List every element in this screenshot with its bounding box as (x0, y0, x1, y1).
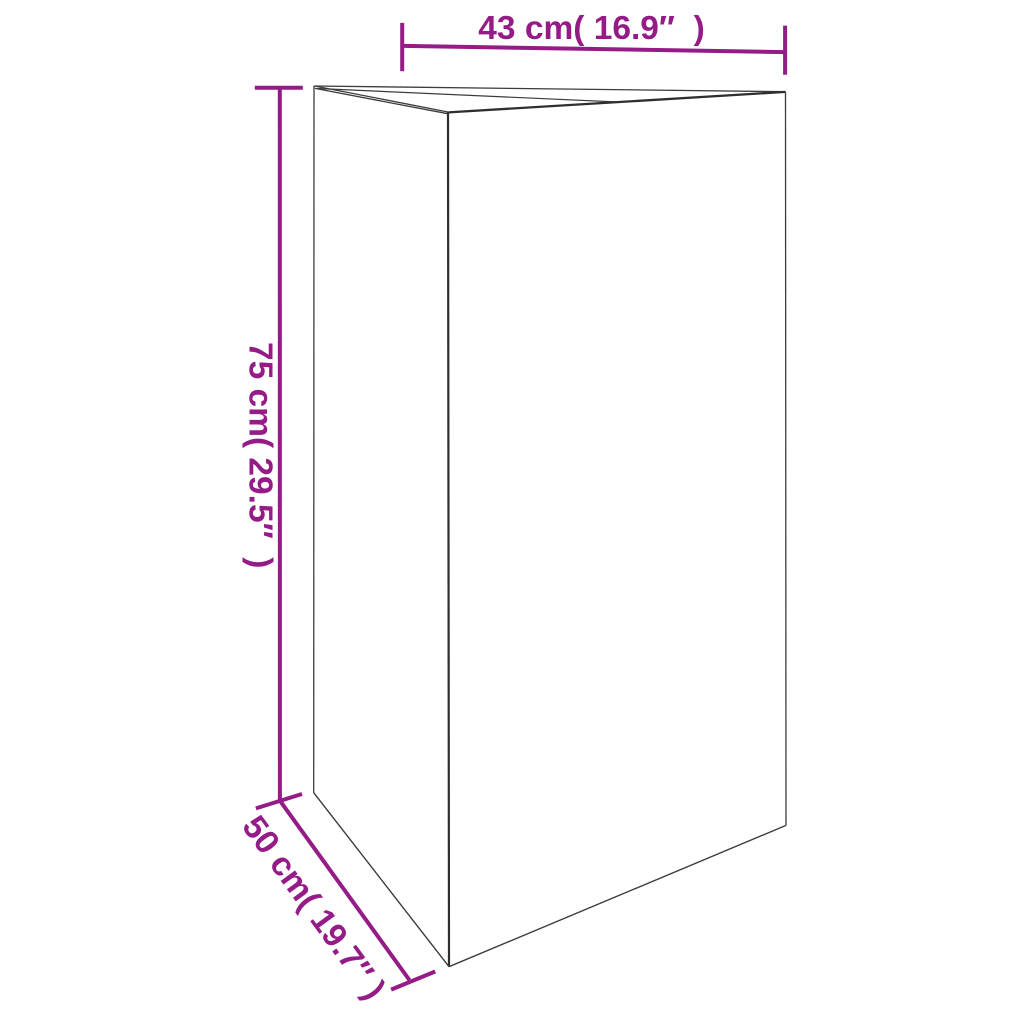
svg-text:75 cm( 29.5″ ): 75 cm( 29.5″ ) (241, 342, 278, 568)
svg-text:43 cm( 16.9″ ): 43 cm( 16.9″ ) (478, 10, 704, 47)
